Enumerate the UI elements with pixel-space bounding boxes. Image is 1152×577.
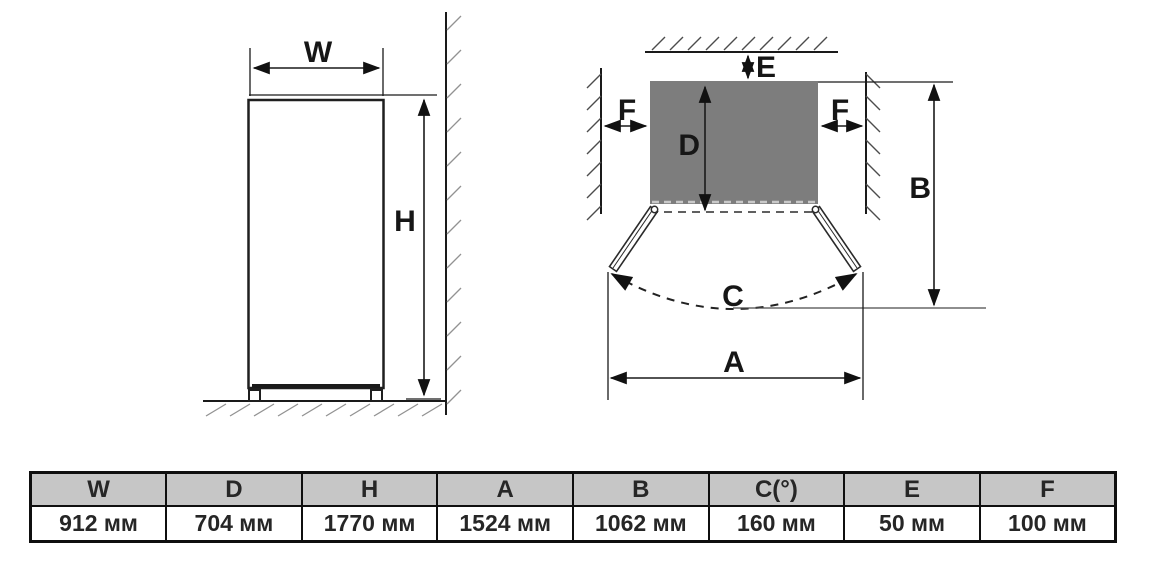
dim-label-h: H: [394, 205, 416, 238]
door-right-inner-line: [818, 210, 858, 268]
fridge-front-outline: [249, 100, 384, 388]
dimensions-table: W D H A B C(°) E F 912 мм 704 мм 1770 мм…: [29, 471, 1117, 543]
floor-hatching: [206, 404, 442, 416]
right-wall-hatching: [866, 74, 880, 220]
door-left-hinge: [651, 206, 657, 212]
col-header-w: W: [31, 473, 167, 507]
front-view-diagram: W H: [203, 12, 461, 416]
front-wall-hatching: [447, 16, 461, 404]
dim-label-w: W: [304, 36, 333, 69]
value-c: 160 мм: [709, 506, 845, 542]
page: W H E F F: [0, 0, 1152, 577]
value-d: 704 мм: [166, 506, 302, 542]
fridge-foot-right: [371, 390, 382, 401]
dim-label-f-right: F: [831, 94, 849, 127]
value-f: 100 мм: [980, 506, 1116, 542]
col-header-e: E: [844, 473, 980, 507]
col-header-h: H: [302, 473, 438, 507]
col-header-f: F: [980, 473, 1116, 507]
dim-label-e: E: [756, 51, 776, 84]
installation-dimensions-diagram: W H E F F: [0, 0, 1152, 462]
dim-label-d: D: [678, 129, 700, 162]
col-header-d: D: [166, 473, 302, 507]
col-header-b: B: [573, 473, 709, 507]
door-right-hinge: [812, 206, 818, 212]
table-values-row: 912 мм 704 мм 1770 мм 1524 мм 1062 мм 16…: [31, 506, 1116, 542]
col-header-c: C(°): [709, 473, 845, 507]
value-e: 50 мм: [844, 506, 980, 542]
back-wall-hatching: [652, 37, 827, 50]
table-header-row: W D H A B C(°) E F: [31, 473, 1116, 507]
dim-label-a: A: [723, 346, 745, 379]
left-wall-hatching: [587, 74, 601, 220]
value-w: 912 мм: [31, 506, 167, 542]
value-b: 1062 мм: [573, 506, 709, 542]
value-a: 1524 мм: [437, 506, 573, 542]
top-view-diagram: E F F D C B A: [587, 37, 986, 400]
fridge-top-view-body: [650, 81, 818, 204]
value-h: 1770 мм: [302, 506, 438, 542]
door-left-inner-line: [613, 210, 653, 268]
col-header-a: A: [437, 473, 573, 507]
fridge-foot-left: [249, 390, 260, 401]
dim-label-b: B: [909, 172, 931, 205]
dim-label-f-left: F: [618, 94, 636, 127]
